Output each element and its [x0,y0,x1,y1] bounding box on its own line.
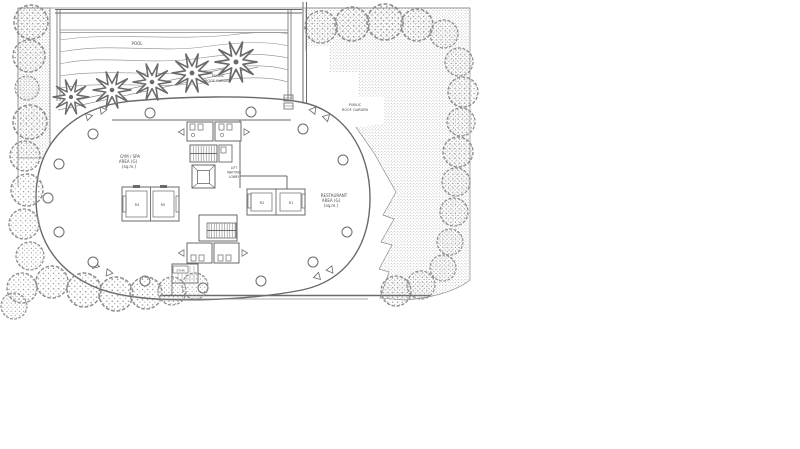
tree-icon [130,277,162,309]
tree-icon [36,266,68,298]
tree-icon [15,76,39,100]
palm-icon [133,64,171,100]
pool-label: POOL [132,41,144,46]
floor-plan-page: STAIR R4 R5 R2 R1 [0,0,800,449]
tree-icon [16,242,44,270]
gym-label-line: (sq.m.) [122,164,137,169]
room-label: R1 [289,201,294,205]
stair-upper [190,145,232,162]
tree-icon [9,209,39,239]
tree-icon [437,229,463,255]
floor-plan-drawing: STAIR R4 R5 R2 R1 [0,0,800,449]
garden-label-line: ROOF GARDEN [205,79,232,83]
tree-icon [430,255,456,281]
tree-icon [1,293,27,319]
room-label: R4 [135,203,140,207]
tree-icon [14,5,48,39]
lift-label-line: LOBBY [229,175,239,179]
tree-icon [448,77,478,107]
stair-label: STAIR [176,268,185,272]
spa-room-pair: R4 R5 [122,185,179,221]
tree-icon [99,277,133,311]
tree-icon [335,7,369,41]
lift-shaft [192,165,215,188]
tree-icon [447,108,475,136]
tree-icon [407,271,435,299]
restaurant-room-pair: R2 R1 [247,189,305,215]
tree-icon [443,137,473,167]
garden-label-line: ROOF GARDEN [342,108,369,112]
room-label: R2 [260,201,265,205]
tree-icon [430,20,458,48]
tree-icon [182,273,208,299]
lift-label-line: WAITING [227,171,241,175]
palm-icon [53,80,89,114]
stair-lower [199,215,237,241]
tree-icon [158,277,186,305]
tree-icon [11,174,43,206]
tree-icon [10,141,40,171]
tree-icon [440,198,468,226]
tree-icon [67,273,101,307]
tree-icon [381,276,411,306]
tree-icon [367,4,403,40]
garden-label-line: PUBLIC [212,74,225,78]
garden-label-line: PUBLIC [349,103,362,107]
palm-icon [172,54,212,92]
tree-icon [442,168,470,196]
restaurant-label-line: (sq.m.) [324,203,339,208]
lift-label-line: LIFT [231,166,237,170]
tree-icon [13,40,45,72]
tree-icon [401,9,433,41]
tree-icon [13,105,47,139]
room-label: R5 [161,203,166,207]
tree-icon [305,11,337,43]
tree-icon [445,48,473,76]
